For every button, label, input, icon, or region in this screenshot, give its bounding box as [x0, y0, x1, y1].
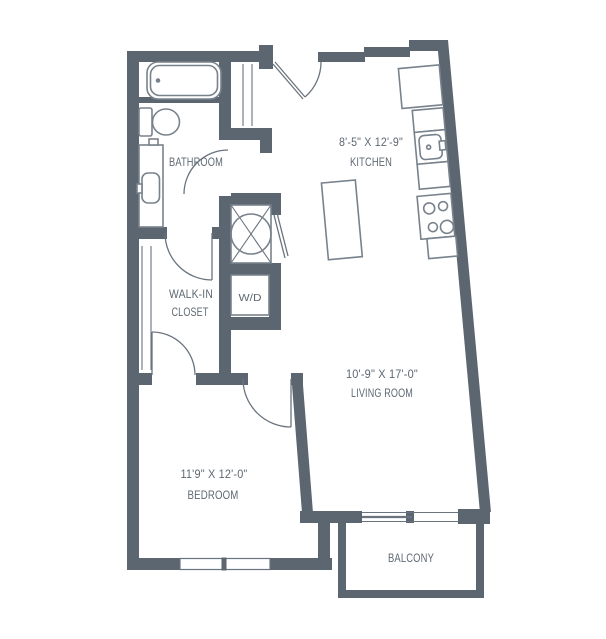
- wall-segment: [231, 193, 281, 205]
- entry-closet-icon: [243, 64, 252, 126]
- living-room-label: LIVING ROOM: [351, 386, 413, 400]
- washer-dryer-label: W/D: [239, 292, 262, 304]
- wall-segment: [291, 373, 303, 385]
- wall-segment: [318, 52, 365, 62]
- wall-segment: [300, 511, 362, 523]
- kitchen-counter-icon: [427, 236, 458, 259]
- bedroom-dims-label: 11'9" X 12'-0": [181, 467, 248, 481]
- wall-segment: [476, 523, 484, 598]
- kitchen-sink-icon: [414, 130, 448, 165]
- wall-segment: [338, 523, 346, 598]
- wall-segment: [231, 263, 281, 275]
- wall-segment: [219, 317, 281, 330]
- floor-plan-svg: BATHROOM 8'-5" X 12'-9" KITCHEN WALK-IN …: [0, 0, 606, 639]
- bathroom-label: BATHROOM: [169, 155, 223, 169]
- wall-segment: [127, 51, 139, 570]
- living-room-dims-label: 10'-9" X 17'-0": [346, 367, 418, 381]
- kitchen-counter-icon: [417, 161, 450, 189]
- closet-shelves-icon: [142, 246, 151, 370]
- kitchen-wall-group: [310, 40, 491, 525]
- kitchen-counter-icon: [412, 108, 445, 133]
- wall-segment: [318, 523, 330, 570]
- wall-segment: [196, 373, 248, 385]
- walk-in-closet-label-line1: WALK-IN: [169, 287, 213, 301]
- wall-segment: [127, 373, 152, 385]
- floor-plan: BATHROOM 8'-5" X 12'-9" KITCHEN WALK-IN …: [0, 0, 606, 639]
- bedroom-door: [243, 379, 291, 427]
- bedroom-window-icon: [180, 558, 270, 571]
- wall-segment: [127, 51, 273, 62]
- toilet-icon: [139, 108, 180, 136]
- kitchen-dims-label: 8'-5" X 12'-9": [339, 135, 403, 149]
- wall-segment: [259, 45, 273, 69]
- wall-segment: [364, 47, 410, 57]
- wall-segment: [127, 227, 167, 239]
- vanity-sink-icon: [137, 139, 163, 227]
- kitchen-island-icon: [321, 180, 362, 260]
- wall-segment: [338, 590, 484, 598]
- wall-segment: [271, 205, 281, 215]
- shower-door-icon: [274, 213, 288, 258]
- walk-in-closet-label-line2: CLOSET: [172, 305, 209, 319]
- closet-door-upper: [165, 233, 212, 280]
- wall-segment: [260, 128, 272, 153]
- bedroom-label: BEDROOM: [188, 488, 239, 502]
- wall-segment: [219, 196, 231, 385]
- wall-segment: [292, 385, 313, 513]
- wall-segment: [219, 51, 231, 140]
- wall-segment: [437, 40, 491, 513]
- stove-icon: [417, 193, 455, 239]
- balcony-label: BALCONY: [388, 551, 434, 565]
- refrigerator-icon: [398, 65, 442, 109]
- bathtub-icon: [147, 62, 221, 99]
- closet-door-lower: [152, 332, 195, 375]
- kitchen-label: KITCHEN: [350, 155, 392, 169]
- entry-door: [273, 62, 321, 99]
